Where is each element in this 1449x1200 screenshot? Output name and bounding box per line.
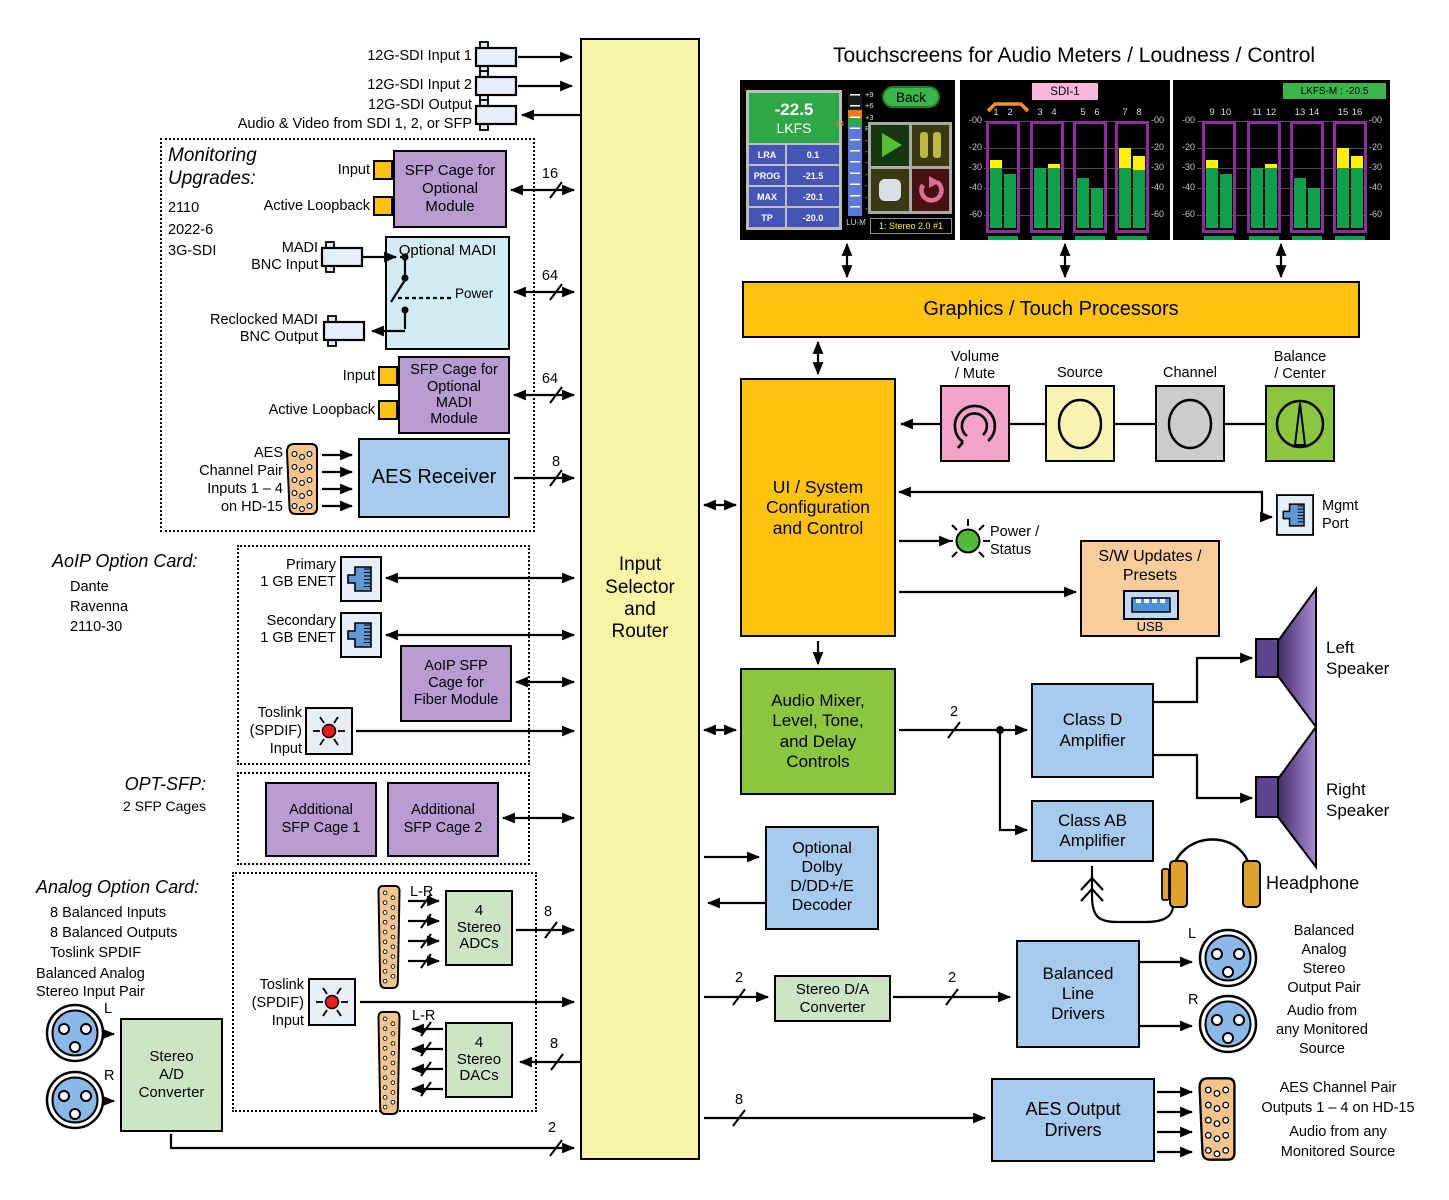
aoip-items: Dante Ravenna 2110-30 <box>70 577 180 637</box>
madi-sfp-input-label: Input <box>293 368 375 385</box>
bus-width-label: 64 <box>538 268 562 284</box>
sfp-loopback-port <box>373 196 393 216</box>
madi-sfp-loopback-port <box>378 400 398 420</box>
audio-mixer-block: Audio Mixer, Level, Tone, and Delay Cont… <box>740 668 896 795</box>
headphone-icon <box>1162 840 1260 908</box>
stereo-dacs-block: 4 Stereo DACs <box>445 1022 513 1098</box>
bus-width-label: 16 <box>538 166 562 182</box>
loudness-panel: -22.5 LKFS LRA0.1 PROG-21.5 MAX-20.1 TP-… <box>746 90 842 230</box>
usb-label: USB <box>1102 619 1198 634</box>
analog-toslink-label: Toslink (SPDIF) Input <box>238 976 304 1030</box>
source-knob[interactable] <box>1045 385 1115 462</box>
play-button[interactable] <box>871 125 909 166</box>
xlr-input-l-icon <box>47 1005 103 1061</box>
meter-group-underline <box>1117 236 1147 240</box>
stat-label: TP <box>749 208 785 227</box>
meter-scale-label: -20 <box>960 142 982 152</box>
meter-scale-label: -40 <box>960 182 982 192</box>
bnc-sdi-output-icon <box>476 100 516 130</box>
loop-button[interactable] <box>912 169 950 212</box>
sdi-output-sublabel: Audio & Video from SDI 1, 2, or SFP <box>208 116 472 133</box>
meter-group-outline <box>1247 121 1281 233</box>
meter-scale-label: -60 <box>960 209 982 219</box>
sdi-input2-label: 12G-SDI Input 2 <box>296 77 472 94</box>
bus-width-label: 2 <box>940 970 964 986</box>
meter-channel-label: 12 <box>1262 107 1280 118</box>
bnc-sdi-input1-icon <box>476 42 516 72</box>
bus-width-label: 2 <box>540 1120 564 1136</box>
volume-knob[interactable] <box>940 385 1010 462</box>
meter-group-outline <box>1030 121 1064 233</box>
left-speaker-label: Left Speaker <box>1326 637 1414 679</box>
loudness-value: -22.5 <box>775 100 814 120</box>
transport-grid <box>868 122 952 214</box>
graphics-touch-processors-block: Graphics / Touch Processors <box>742 281 1360 338</box>
loudness-value-box: -22.5 LKFS <box>749 93 839 143</box>
meter-group-outline <box>986 121 1020 233</box>
sfp-input-label: Input <box>288 162 370 179</box>
source-status-bar: 1: Stereo 2.0 #1 <box>870 218 952 234</box>
optsfp-sub: 2 SFP Cages <box>100 798 206 814</box>
class-ab-amplifier-block: Class AB Amplifier <box>1031 800 1154 862</box>
meter-scale-label: -60 <box>1173 209 1195 219</box>
meter-channel-label: 16 <box>1348 107 1366 118</box>
aes-input-label: AES Channel Pair Inputs 1 – 4 on HD-15 <box>183 444 283 516</box>
loudness-unit: LKFS <box>776 120 811 136</box>
stat-label: PROG <box>749 166 785 185</box>
meter-scale-label: -60 <box>1369 209 1389 219</box>
headphone-label: Headphone <box>1266 873 1386 894</box>
meter-scale-label: -30 <box>1173 162 1195 172</box>
meter-scale-label: -40 <box>1173 182 1195 192</box>
right-speaker-label: Right Speaker <box>1326 779 1414 821</box>
output-pair-note: Audio from any Monitored Source <box>1260 1002 1384 1059</box>
touchscreens-title: Touchscreens for Audio Meters / Loudness… <box>744 44 1404 69</box>
stereo-da-converter-block: Stereo D/A Converter <box>774 975 891 1022</box>
madi-sfp-loopback-label: Active Loopback <box>248 402 375 419</box>
power-status-led-icon <box>946 519 990 557</box>
stat-value: -20.0 <box>787 208 839 227</box>
meter-group-underline <box>1292 236 1322 240</box>
meter-channel-label: 4 <box>1045 107 1063 118</box>
meter-scale-label: -20 <box>1173 142 1195 152</box>
stereo-adcs-block: 4 Stereo ADCs <box>445 890 513 966</box>
meter-group-underline <box>1335 236 1365 240</box>
xlr-output-r-icon <box>1200 996 1256 1052</box>
left-speaker-icon <box>1256 589 1316 727</box>
meter-channel-label: 6 <box>1088 107 1106 118</box>
lu-meter-label: LU-M <box>840 218 872 227</box>
loop-icon <box>916 176 944 204</box>
meter-channel-label: 8 <box>1130 107 1148 118</box>
pause-icon <box>933 132 941 158</box>
meter-group-underline <box>1032 236 1062 240</box>
stat-value: -21.5 <box>787 166 839 185</box>
output-pair-label: Balanced Analog Stereo Output Pair <box>1274 922 1374 998</box>
channel-knob[interactable] <box>1155 385 1225 462</box>
bus-width-label: 2 <box>942 704 966 720</box>
hd15-output-icon <box>1200 1078 1235 1159</box>
meter-group-underline <box>1075 236 1105 240</box>
balance-knob-label: Balance / Center <box>1255 349 1345 383</box>
aoip-card-title: AoIP Option Card: <box>52 551 230 572</box>
meter-group-underline <box>988 236 1018 240</box>
meter-scale-label: -00 <box>1151 115 1171 125</box>
aes-output-drivers-block: AES Output Drivers <box>991 1078 1155 1162</box>
aoip-sfp-cage-block: AoIP SFP Cage for Fiber Module <box>400 645 512 722</box>
meter-scale-label: -30 <box>1151 162 1171 172</box>
primary-enet-label: Primary 1 GB ENET <box>238 557 336 591</box>
block-diagram: Input Selector and Router 12G-SDI Input … <box>0 0 1449 1200</box>
touchscreen-loudness: -22.5 LKFS LRA0.1 PROG-21.5 MAX-20.1 TP-… <box>740 80 955 240</box>
mgmt-port-label: Mgmt Port <box>1322 497 1378 533</box>
aes-receiver-block: AES Receiver <box>358 438 510 518</box>
play-icon <box>882 133 902 157</box>
input-selector-router-block: Input Selector and Router <box>580 38 700 1160</box>
meter-channel-label: 10 <box>1217 107 1235 118</box>
stat-value: 0.1 <box>787 145 839 164</box>
ui-system-config-block: UI / System Configuration and Control <box>740 378 896 637</box>
bus-width-label: 8 <box>727 1092 751 1108</box>
lr-top-label: L-R <box>410 884 450 901</box>
meter-scale-label: -20 <box>1151 142 1171 152</box>
meter-group-outline <box>1202 121 1236 233</box>
sdi-input1-label: 12G-SDI Input 1 <box>296 48 472 65</box>
aes-output-label: AES Channel Pair Outputs 1 – 4 on HD-15 <box>1242 1078 1434 1118</box>
bus-width-label: 2 <box>727 970 751 986</box>
meter-scale-label: -40 <box>1151 182 1171 192</box>
meter-scale-label: -30 <box>1369 162 1389 172</box>
monitoring-title: Monitoring Upgrades: <box>168 144 308 190</box>
touchscreen-meters-1-8: SDI-1 -00-00-20-20-30-30-40-40-60-601234… <box>960 80 1170 240</box>
meter-scale-label: -00 <box>1173 115 1195 125</box>
meter-scale-label: -30 <box>960 162 982 172</box>
lu-meter-bar <box>848 94 862 216</box>
aes-output-note: Audio from any Monitored Source <box>1250 1122 1426 1162</box>
lu-meter-ticks <box>850 94 860 216</box>
secondary-enet-label: Secondary 1 GB ENET <box>238 613 336 647</box>
madi-power-label: Power <box>455 286 503 302</box>
additional-sfp-cage-1: Additional SFP Cage 1 <box>265 782 377 857</box>
meter-scale-label: -00 <box>960 115 982 125</box>
madi-bnc-output-label: Reclocked MADI BNC Output <box>193 312 318 346</box>
source-knob-label: Source <box>1045 365 1115 382</box>
balanced-input-pair-label: Balanced Analog Stereo Input Pair <box>36 965 192 1001</box>
additional-sfp-cage-2: Additional SFP Cage 2 <box>387 782 499 857</box>
meter-group-outline <box>1333 121 1367 233</box>
xlr-output-l-icon <box>1200 930 1256 986</box>
xlr-in-l-label: L <box>104 1001 120 1018</box>
madi-bnc-input-label: MADI BNC Input <box>228 240 318 274</box>
bus-width-label: 8 <box>536 904 560 920</box>
bnc-sdi-input2-icon <box>476 71 516 101</box>
meter-scale-label: -40 <box>1369 182 1389 192</box>
meter-group-underline <box>1204 236 1234 240</box>
touchscreen-meters-9-16: LKFS-M : -20.5 -00-00-20-20-30-30-40-40-… <box>1173 80 1390 240</box>
balance-knob[interactable] <box>1265 385 1335 462</box>
xlr-out-l-label: L <box>1188 926 1204 943</box>
dolby-decoder-block: Optional Dolby D/DD+/E Decoder <box>765 826 879 930</box>
analog-items: 8 Balanced Inputs 8 Balanced Outputs Tos… <box>50 903 220 963</box>
stop-button[interactable] <box>871 169 909 212</box>
source-badge: SDI-1 <box>1032 83 1098 100</box>
right-speaker-icon <box>1256 727 1316 867</box>
channel-knob-label: Channel <box>1155 365 1225 382</box>
back-button[interactable]: Back <box>882 86 940 108</box>
sfp-loopback-label: Active Loopback <box>243 198 370 215</box>
bus-width-label: 64 <box>538 371 562 387</box>
class-d-amplifier-block: Class D Amplifier <box>1031 683 1154 778</box>
lkfs-badge: LKFS-M : -20.5 <box>1283 83 1386 99</box>
madi-sfp-input-port <box>378 366 398 386</box>
pause-button[interactable] <box>912 125 950 166</box>
xlr-in-r-label: R <box>104 1068 120 1085</box>
meter-channel-label: 14 <box>1305 107 1323 118</box>
meter-group-outline <box>1290 121 1324 233</box>
aoip-toslink-label: Toslink (SPDIF) Input <box>236 704 302 758</box>
optsfp-title: OPT-SFP: <box>100 774 206 795</box>
sfp-input-port <box>373 160 393 180</box>
stat-label: MAX <box>749 187 785 206</box>
stop-icon <box>879 179 901 201</box>
volume-knob-label: Volume / Mute <box>930 349 1020 383</box>
xlr-input-r-icon <box>47 1072 103 1128</box>
meter-group-outline <box>1115 121 1149 233</box>
meter-scale-label: -00 <box>1369 115 1389 125</box>
stat-label: LRA <box>749 145 785 164</box>
stereo-ad-converter-block: Stereo A/D Converter <box>120 1018 223 1132</box>
sfp-cage-optional-madi-module: SFP Cage for Optional MADI Module <box>398 356 510 434</box>
meter-scale-label: -20 <box>1369 142 1389 152</box>
rj45-mgmt-port-icon <box>1277 495 1313 535</box>
meter-scale-label: -60 <box>1151 209 1171 219</box>
sdi-output-label: 12G-SDI Output <box>312 97 472 114</box>
meter-group-outline <box>1073 121 1107 233</box>
analog-card-title: Analog Option Card: <box>36 877 234 898</box>
meter-channel-label: 2 <box>1001 107 1019 118</box>
meter-group-underline <box>1249 236 1279 240</box>
pause-icon <box>920 132 928 158</box>
sfp-cage-optional-module: SFP Cage for Optional Module <box>393 150 507 228</box>
bus-width-label: 8 <box>542 1036 566 1052</box>
balanced-line-drivers-block: Balanced Line Drivers <box>1016 940 1140 1048</box>
stat-value: -20.1 <box>787 187 839 206</box>
ref-level-label: -24 <box>822 120 844 129</box>
power-status-label: Power / Status <box>990 523 1065 559</box>
bus-width-label: 8 <box>544 454 568 470</box>
xlr-out-r-label: R <box>1188 992 1204 1009</box>
